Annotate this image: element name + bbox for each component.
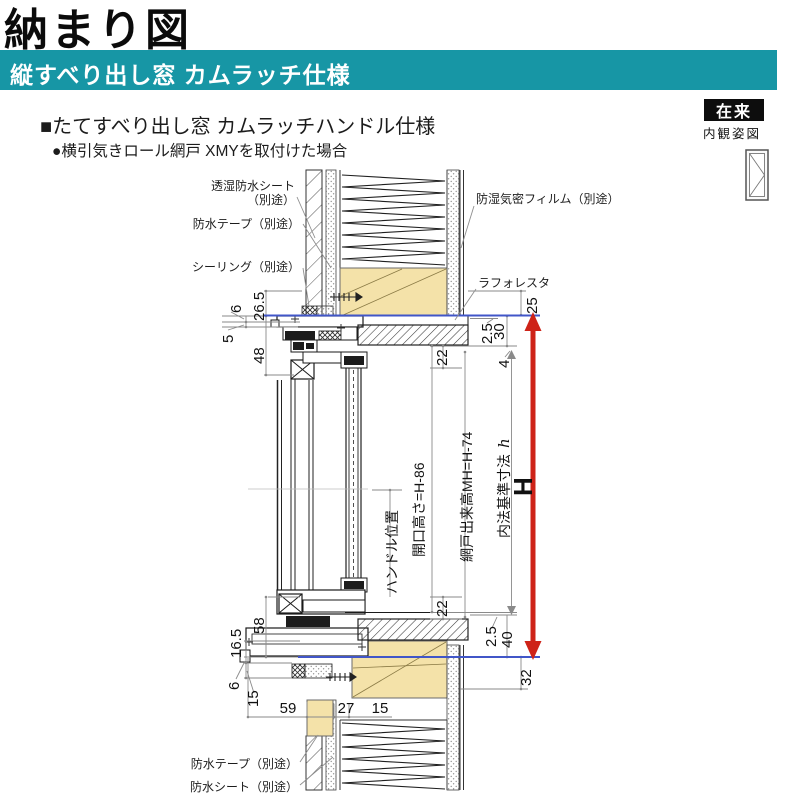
callout-moisture-sheet-2: （別途）	[247, 192, 295, 207]
casement-window-icon	[746, 150, 768, 200]
dim-26-5: 26.5	[251, 292, 268, 321]
insulation-top	[342, 175, 445, 265]
interior-board-top	[447, 170, 459, 325]
dim-2-5-bottom: 2.5	[483, 626, 500, 647]
sash-verticals	[248, 368, 368, 590]
label-opening-height: 開口高さ=H-86	[411, 462, 427, 557]
casing-sill	[358, 619, 468, 640]
siding-bottom	[306, 736, 322, 790]
dim-32: 32	[518, 669, 535, 686]
callout-water-tape-top: 防水テープ（別途）	[193, 216, 300, 231]
dim-25: 25	[524, 297, 541, 314]
callout-water-tape-bottom: 防水テープ（別途）	[191, 756, 298, 771]
dim-48: 48	[251, 347, 268, 364]
section-drawing: 透湿防水シート （別途） 防水テープ（別途） シーリング（別途） 防湿気密フィル…	[0, 0, 800, 800]
label-handle-position: ハンドル位置	[384, 510, 400, 594]
dim-58: 58	[251, 617, 268, 634]
dim-59: 59	[280, 700, 297, 717]
dim-4: 4	[496, 360, 513, 368]
callout-moisture-sheet: 透湿防水シート	[211, 178, 295, 193]
label-screen-height: 網戸出来高MH=H-74	[459, 431, 475, 562]
dim-15-left: 15	[245, 690, 262, 707]
page: 納まり図 縦すべり出し窓 カムラッチ仕様 ■たてすべり出し窓 カムラッチハンドル…	[0, 0, 800, 800]
callout-water-sheet-bottom: 防水シート（別途）	[190, 779, 298, 794]
wall-top	[302, 170, 464, 333]
dim-5-top: 5	[220, 335, 237, 343]
label-overall-height: H	[508, 477, 538, 496]
dim-40: 40	[499, 631, 516, 648]
callout-sealing: シーリング（別途）	[192, 259, 300, 274]
callout-laforesta: ラフォレスタ	[478, 276, 550, 290]
dim-16-5: 16.5	[228, 629, 245, 658]
interior-board-bottom	[447, 645, 459, 790]
dim-30: 30	[491, 323, 508, 340]
dim-22-bottom: 22	[434, 600, 451, 617]
dim-22-top: 22	[434, 349, 451, 366]
exterior-filler-wood	[307, 700, 333, 736]
callout-vapor-film: 防湿気密フィルム（別途）	[476, 191, 620, 206]
dim-6-bottom: 6	[226, 682, 243, 690]
glass-top-cap	[344, 356, 364, 365]
dim-27: 27	[338, 700, 355, 717]
glass-bottom-cap	[344, 581, 364, 589]
casing-head	[358, 325, 468, 345]
dim-6-top: 6	[228, 305, 245, 313]
dim-15-bottom: 15	[372, 700, 389, 717]
insulation-bottom	[342, 723, 445, 789]
label-inner-standard-symbol: h	[495, 438, 513, 448]
